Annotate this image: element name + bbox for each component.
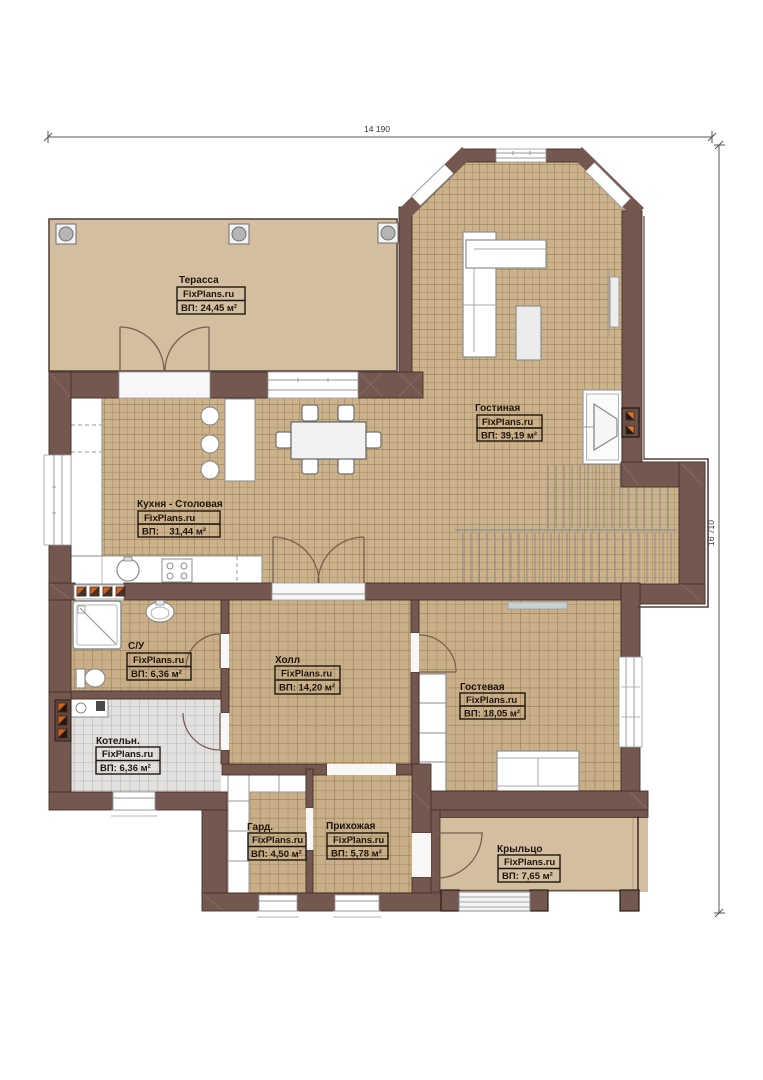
svg-text:ВП: 24,45 м²: ВП: 24,45 м²: [181, 303, 237, 314]
svg-text:ВП: 5,78 м²: ВП: 5,78 м²: [331, 849, 382, 860]
svg-text:FixPlans.ru: FixPlans.ru: [183, 289, 234, 300]
svg-text:FixPlans.ru: FixPlans.ru: [504, 857, 555, 868]
svg-text:Прихожая: Прихожая: [326, 821, 376, 832]
svg-text:FixPlans.ru: FixPlans.ru: [133, 655, 184, 666]
svg-text:Терасса: Терасса: [179, 275, 219, 286]
svg-text:ВП: 14,20 м²: ВП: 14,20 м²: [279, 683, 335, 694]
svg-text:FixPlans.ru: FixPlans.ru: [144, 513, 195, 524]
svg-text:Котельн.: Котельн.: [96, 736, 140, 747]
svg-text:FixPlans.ru: FixPlans.ru: [482, 417, 533, 428]
svg-text:FixPlans.ru: FixPlans.ru: [252, 835, 303, 846]
svg-text:FixPlans.ru: FixPlans.ru: [466, 695, 517, 706]
svg-text:14 190: 14 190: [364, 124, 390, 134]
svg-text:ВП: 6,36 м²: ВП: 6,36 м²: [100, 763, 151, 774]
svg-text:Гостиная: Гостиная: [475, 403, 520, 414]
svg-text:С/У: С/У: [128, 641, 145, 652]
svg-text:ВП: 31,44 м²: ВП: 31,44 м²: [142, 527, 206, 538]
svg-text:Крыльцо: Крыльцо: [497, 844, 543, 855]
svg-text:ВП: 39,19 м²: ВП: 39,19 м²: [481, 431, 537, 442]
svg-text:Гард.: Гард.: [247, 822, 273, 833]
svg-text:Холл: Холл: [275, 655, 300, 666]
svg-text:FixPlans.ru: FixPlans.ru: [102, 749, 153, 760]
svg-text:ВП: 6,36 м²: ВП: 6,36 м²: [131, 669, 182, 680]
svg-text:ВП: 18,05 м²: ВП: 18,05 м²: [464, 709, 520, 720]
svg-text:FixPlans.ru: FixPlans.ru: [333, 835, 384, 846]
svg-text:ВП: 7,65 м²: ВП: 7,65 м²: [502, 871, 553, 882]
svg-text:ВП: 4,50 м²: ВП: 4,50 м²: [251, 849, 302, 860]
svg-text:Кухня - Столовая: Кухня - Столовая: [137, 499, 223, 510]
svg-text:Гостевая: Гостевая: [460, 682, 505, 693]
svg-text:FixPlans.ru: FixPlans.ru: [281, 669, 332, 680]
